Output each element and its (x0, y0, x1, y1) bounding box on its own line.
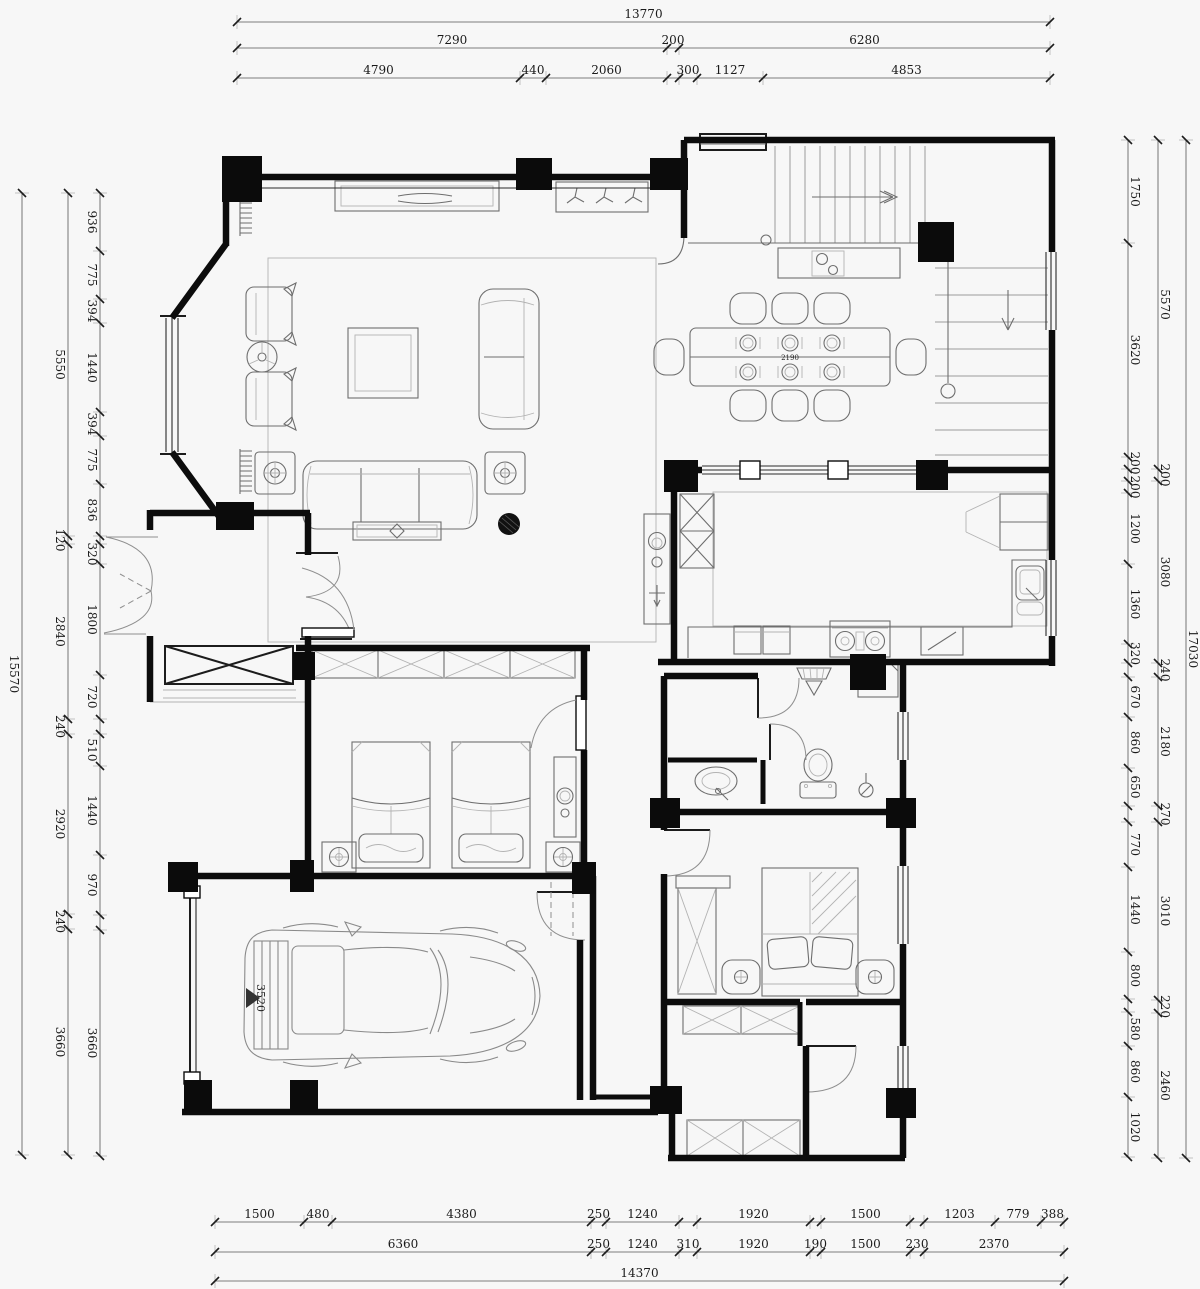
dim-label: 240 (53, 715, 67, 738)
dim-label: 1240 (627, 1207, 658, 1221)
armchair (246, 368, 296, 430)
floor-lamp (498, 513, 520, 535)
dim-label: 2180 (1158, 726, 1172, 757)
dim-label: 394 (85, 300, 99, 323)
dim-label: 775 (85, 264, 99, 287)
wardrobe (312, 650, 575, 678)
kitchen-side-window (1046, 560, 1056, 636)
tv-cabinet (335, 181, 499, 211)
dim-label: 1500 (850, 1237, 881, 1251)
dim-label: 800 (1128, 964, 1142, 987)
garage-side-door (537, 892, 585, 940)
dim-label: 3660 (53, 1027, 67, 1058)
single-bed (452, 742, 530, 868)
dim-chain-bottom-inner: 150048043802501240192015001203779388 (211, 1207, 1068, 1229)
dim-label: 480 (307, 1207, 330, 1221)
dim-label: 250 (587, 1207, 610, 1221)
dim-label: 13770 (624, 7, 662, 21)
dim-label: 970 (85, 874, 99, 897)
dim-label: 250 (587, 1237, 610, 1251)
stair-window (1046, 252, 1056, 330)
dim-label: 4853 (891, 63, 922, 77)
dim-chain-right-middle: 55702003080240218027030102202460 (1151, 136, 1172, 1162)
bedroom-2-furniture (676, 868, 894, 996)
dim-label: 200 (662, 33, 685, 47)
dim-label: 1800 (85, 604, 99, 635)
fridge (966, 494, 1048, 550)
dim-label: 17030 (1186, 630, 1200, 668)
sideboard (778, 248, 900, 278)
base-cabinets (734, 626, 790, 654)
dim-label: 836 (85, 499, 99, 522)
round-side-table (247, 342, 277, 372)
double-bed (762, 868, 858, 996)
dim-label: 320 (85, 543, 99, 566)
bathroom-window (898, 712, 908, 760)
dim-label: 200 (1128, 452, 1142, 475)
dim-label: 1020 (1128, 1112, 1142, 1143)
cutting-board (921, 627, 963, 655)
dim-label: 230 (906, 1237, 929, 1251)
dim-label: 1200 (1128, 513, 1142, 544)
dim-label: 1920 (738, 1237, 769, 1251)
dim-label: 1203 (944, 1207, 975, 1221)
dim-label: 2060 (591, 63, 622, 77)
desk-stool (554, 757, 576, 837)
bar-counter (644, 514, 670, 624)
dim-label: 120 (53, 529, 67, 552)
garage-door (184, 886, 200, 1084)
entry-porch (165, 646, 293, 684)
dim-label: 3620 (1128, 335, 1142, 366)
dim-chain-right-outer: 17030 (1179, 136, 1200, 1162)
dim-chain-top-overall: 13770 (233, 7, 1054, 29)
coat-hooks (556, 182, 648, 212)
nightstand-lamp (856, 960, 894, 994)
floor-drain (859, 773, 873, 797)
garage-car (244, 922, 540, 1068)
floor-plan-page: 1377072902006280479044020603001127485315… (0, 0, 1200, 1289)
entry-double-door (104, 537, 352, 639)
dim-chain-left-outer: 15570 (7, 189, 29, 1159)
dim-label: 2460 (1158, 1070, 1172, 1101)
dim-label: 860 (1128, 731, 1142, 754)
dim-chain-bottom-outer: 14370 (211, 1266, 1068, 1288)
dim-chain-top-inner: 4790440206030011274853 (233, 63, 1054, 85)
nightstand-lamp (722, 960, 760, 994)
bedroom-1-furniture (312, 650, 580, 872)
dim-label: 1920 (738, 1207, 769, 1221)
dim-label: 220 (1158, 995, 1172, 1018)
dim-label: 300 (677, 63, 700, 77)
dim-label: 1440 (85, 795, 99, 826)
dim-label: 770 (1128, 833, 1142, 856)
dim-label: 7290 (437, 33, 468, 47)
dining-table-size-label: 2190 (781, 354, 799, 362)
dim-label: 4790 (363, 63, 394, 77)
clothes-hanger (797, 668, 831, 695)
dim-label: 200 (1158, 464, 1172, 487)
dim-chain-top-middle: 72902006280 (233, 33, 1054, 55)
wash-basin (695, 767, 737, 800)
dim-label: 3080 (1158, 557, 1172, 588)
dim-label: 2370 (979, 1237, 1010, 1251)
toilet (800, 749, 836, 798)
dim-label: 3010 (1158, 896, 1172, 927)
side-table-lamp (255, 452, 295, 494)
dim-label: 1750 (1128, 176, 1142, 207)
dim-label: 1440 (1128, 894, 1142, 925)
dim-label: 670 (1128, 686, 1142, 709)
dim-label: 3660 (85, 1028, 99, 1059)
dim-label: 779 (1007, 1207, 1030, 1221)
bedroom2-door (664, 830, 710, 876)
dim-label: 310 (677, 1237, 700, 1251)
dim-chain-right-inner: 1750362020020012001360320670860650770144… (1121, 136, 1142, 1161)
closet-window (898, 1046, 908, 1090)
coffee-table (348, 328, 418, 398)
three-seat-sofa (303, 461, 477, 529)
dim-label: 388 (1041, 1207, 1064, 1221)
floor-outlines (150, 258, 1047, 702)
dim-label: 190 (804, 1237, 827, 1251)
dim-label: 320 (1128, 642, 1142, 665)
dim-label: 1360 (1128, 589, 1142, 620)
counter (688, 560, 1046, 658)
porch-door (302, 568, 354, 637)
kitchen-fixtures (680, 494, 1048, 658)
armchair (246, 283, 296, 345)
dim-label: 1240 (627, 1237, 658, 1251)
dim-label: 936 (85, 211, 99, 234)
tall-cabinet (680, 494, 714, 568)
dim-label: 4380 (446, 1207, 477, 1221)
dim-chain-left-inner: 9367753941440394775836320180072051014409… (85, 189, 107, 1160)
nightstand-lamp (322, 842, 356, 872)
plan-text-labels: 35202190 (254, 354, 799, 1012)
bedroom2-window (898, 866, 908, 944)
floor-plan-drawing: 1377072902006280479044020603001127485315… (0, 0, 1200, 1289)
dim-label: 1440 (85, 352, 99, 383)
dim-label: 2920 (53, 809, 67, 840)
dim-chain-left-middle: 5550120284024029202403660 (53, 189, 75, 1159)
kitchen-top-window (702, 461, 946, 479)
opening-above-dashes (551, 882, 573, 936)
living-room-furniture (240, 181, 648, 540)
dim-label: 240 (53, 910, 67, 933)
closet-room-door (806, 1046, 856, 1092)
dim-label: 6360 (388, 1237, 419, 1251)
dim-label: 1127 (715, 63, 746, 77)
closet-wardrobes (683, 1006, 800, 1156)
bedroom1-door (531, 696, 586, 750)
loveseat-sofa (479, 289, 539, 429)
windows (160, 188, 1056, 1090)
radiator (240, 191, 252, 494)
dim-label: 510 (85, 739, 99, 762)
dim-label: 200 (1128, 476, 1142, 499)
dim-label: 1500 (244, 1207, 275, 1221)
dim-label: 2840 (53, 616, 67, 647)
dim-label: 15570 (7, 655, 21, 693)
console-table (353, 522, 441, 540)
bay-window (160, 316, 186, 454)
toilet-room-door (770, 724, 806, 760)
dim-label: 1500 (850, 1207, 881, 1221)
dim-label: 775 (85, 449, 99, 472)
dim-label: 860 (1128, 1060, 1142, 1083)
dim-label: 394 (85, 413, 99, 436)
dim-label: 650 (1128, 776, 1142, 799)
side-table-lamp (485, 452, 525, 494)
single-bed (352, 742, 430, 868)
car-length-label: 3520 (254, 984, 267, 1012)
dim-label: 14370 (620, 1266, 658, 1280)
dim-label: 5570 (1158, 289, 1172, 320)
dim-label: 6280 (849, 33, 880, 47)
dim-label: 580 (1128, 1018, 1142, 1041)
dim-label: 440 (522, 63, 545, 77)
dim-label: 240 (1158, 659, 1172, 682)
dim-chain-bottom-middle: 63602501240310192019015002302370 (211, 1237, 1068, 1259)
kitchen-sink (1016, 566, 1044, 615)
dim-label: 270 (1158, 803, 1172, 826)
staircase (658, 134, 1048, 455)
bathroom-door (758, 678, 799, 718)
dim-label: 720 (85, 686, 99, 709)
dim-label: 5550 (53, 349, 67, 380)
